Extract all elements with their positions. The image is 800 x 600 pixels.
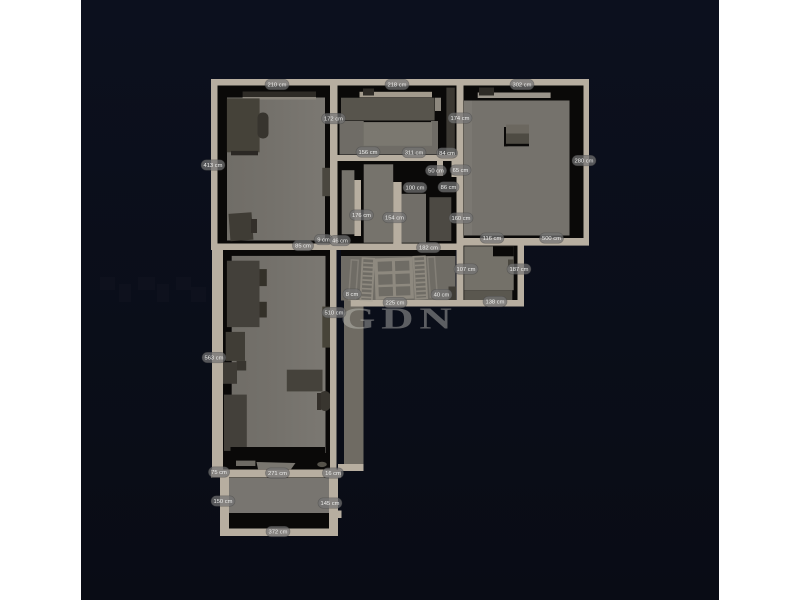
svg-text:84 cm: 84 cm	[439, 151, 455, 157]
svg-text:16 cm: 16 cm	[325, 471, 341, 477]
svg-text:9 cm: 9 cm	[317, 238, 330, 244]
svg-text:174 cm: 174 cm	[450, 116, 469, 122]
svg-text:280 cm: 280 cm	[574, 159, 593, 165]
svg-text:40 cm: 40 cm	[434, 293, 450, 299]
svg-text:372 cm: 372 cm	[268, 530, 287, 536]
svg-text:311 cm: 311 cm	[405, 151, 424, 157]
svg-text:75 cm: 75 cm	[211, 470, 227, 476]
svg-text:156 cm: 156 cm	[358, 150, 377, 156]
svg-text:145 cm: 145 cm	[320, 501, 339, 507]
svg-text:563 cm: 563 cm	[204, 356, 223, 362]
svg-text:160 cm: 160 cm	[451, 216, 470, 222]
svg-text:210 cm: 210 cm	[267, 83, 286, 89]
svg-text:218 cm: 218 cm	[387, 83, 406, 89]
svg-text:154 cm: 154 cm	[385, 216, 404, 222]
svg-text:187 cm: 187 cm	[509, 267, 528, 273]
svg-text:176 cm: 176 cm	[352, 213, 371, 219]
svg-text:150 cm: 150 cm	[213, 499, 232, 505]
svg-text:302 cm: 302 cm	[512, 83, 531, 89]
svg-text:225 cm: 225 cm	[385, 301, 404, 307]
svg-text:85 cm: 85 cm	[295, 244, 311, 250]
svg-text:46 cm: 46 cm	[332, 239, 348, 245]
svg-text:172 cm: 172 cm	[324, 117, 343, 123]
svg-text:271 cm: 271 cm	[268, 471, 287, 477]
svg-text:116 cm: 116 cm	[483, 236, 502, 242]
svg-text:500 cm: 500 cm	[542, 236, 561, 242]
svg-text:8 cm: 8 cm	[346, 292, 359, 298]
svg-text:510 cm: 510 cm	[324, 311, 343, 317]
svg-text:182 cm: 182 cm	[419, 246, 438, 252]
svg-text:413 cm: 413 cm	[203, 163, 222, 169]
svg-text:50 cm: 50 cm	[428, 169, 444, 175]
svg-text:138 cm: 138 cm	[485, 300, 504, 306]
svg-text:107 cm: 107 cm	[456, 267, 475, 273]
svg-text:86 cm: 86 cm	[441, 185, 457, 191]
svg-text:100 cm: 100 cm	[405, 186, 424, 192]
svg-text:65 cm: 65 cm	[453, 168, 469, 174]
